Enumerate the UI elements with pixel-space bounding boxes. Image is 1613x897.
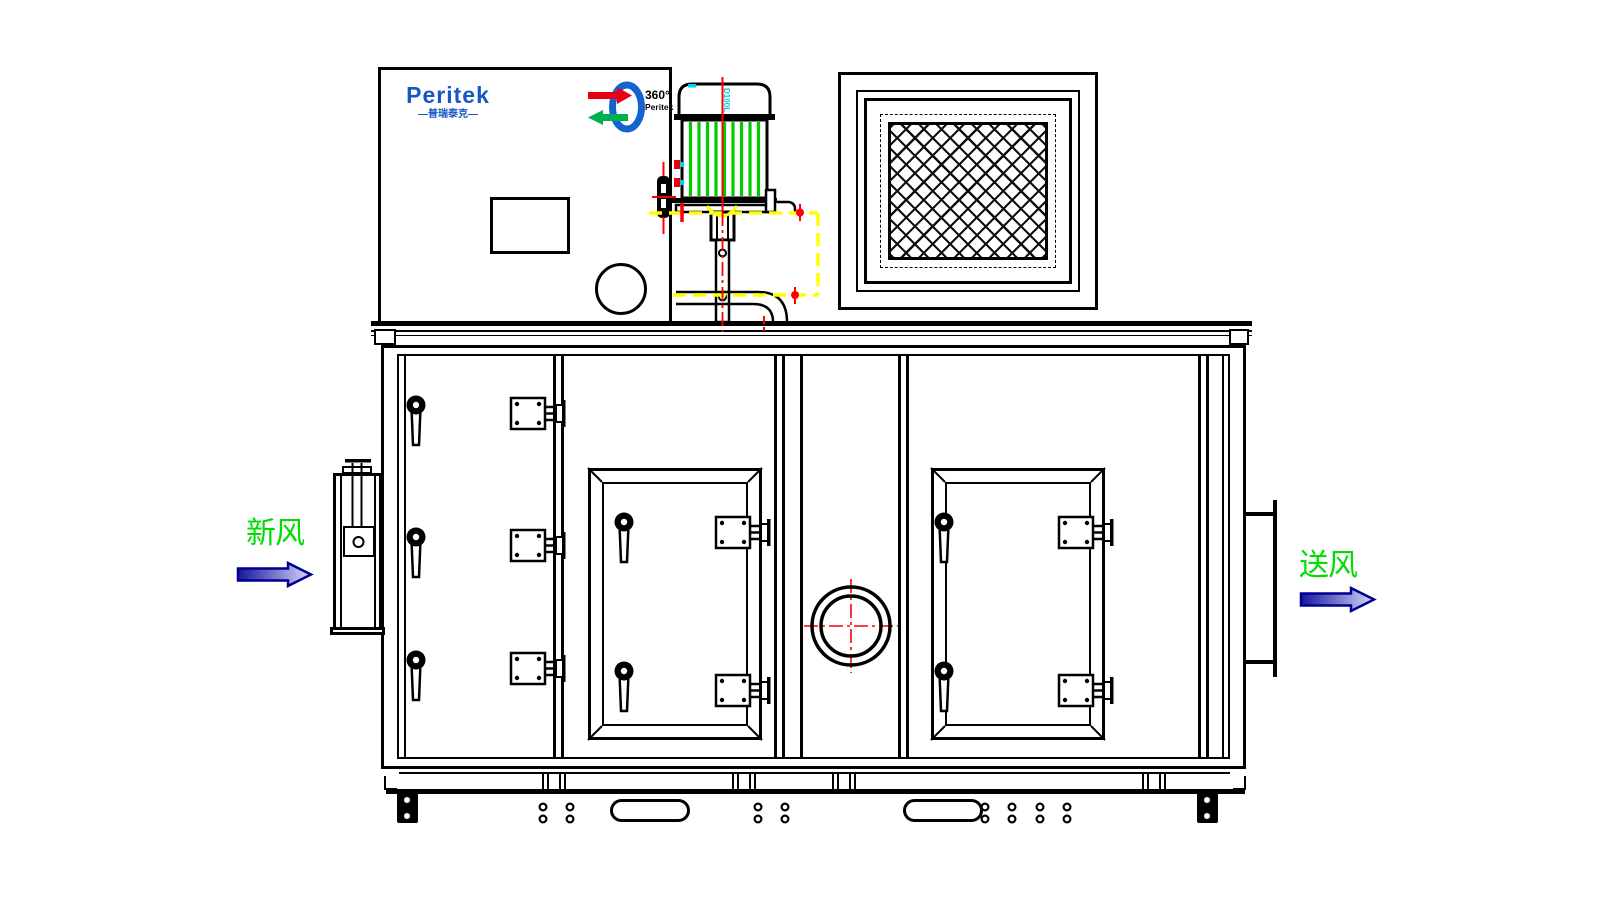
base-bracket-right xyxy=(1197,793,1218,823)
brand-logo-subtitle: —普瑞泰克— xyxy=(398,110,498,120)
outlet-flange-bottom xyxy=(1246,660,1277,664)
rim-line-1 xyxy=(371,330,1252,332)
motor-assembly xyxy=(671,84,795,322)
cabinet-inner xyxy=(397,354,1230,759)
base-channel-top xyxy=(386,789,1245,794)
motor-frame-size-label: D100L xyxy=(722,88,731,112)
brand-logo-text: Peritek xyxy=(398,84,498,107)
base-bracket-holes xyxy=(404,797,1210,819)
wall-line-right xyxy=(1222,356,1224,757)
base-left-notch xyxy=(384,776,397,790)
divider-d2 xyxy=(906,356,909,757)
inlet-duct-cap xyxy=(342,466,372,474)
forklift-slot-right xyxy=(903,799,983,822)
base-bolt-holes xyxy=(1037,804,1071,823)
base-bolt-holes xyxy=(540,804,574,823)
fresh-air-label: 新风 xyxy=(246,508,304,552)
divider-b2 xyxy=(782,356,785,757)
inlet-duct-line-l xyxy=(340,476,342,630)
inlet-duct-bottom xyxy=(330,627,385,635)
divider-b1 xyxy=(774,356,777,757)
wall-line-left xyxy=(404,356,406,757)
supply-air-label: 送风 xyxy=(1299,540,1357,584)
base-bolt-holes xyxy=(982,804,1016,823)
cyan-tick xyxy=(688,84,696,88)
forklift-slot-left xyxy=(610,799,690,822)
base-strip-ticks xyxy=(543,774,1165,789)
cad-drawing-canvas: Peritek —普瑞泰克— 新风 送 xyxy=(0,0,1613,897)
fresh-air-arrow xyxy=(238,563,311,586)
right-door-panel xyxy=(945,482,1091,726)
divider-e2 xyxy=(1206,356,1209,757)
divider-d1 xyxy=(898,356,901,757)
base-bracket-left xyxy=(397,793,418,823)
filter-mesh-grille xyxy=(888,122,1048,260)
roof-line xyxy=(371,321,1252,326)
motor-pedestal xyxy=(676,292,787,322)
motor-fins xyxy=(691,122,759,196)
supply-air-arrow xyxy=(1301,588,1374,611)
divider-e1 xyxy=(1198,356,1201,757)
brand-logo: Peritek —普瑞泰克— xyxy=(398,84,498,120)
middle-door-panel xyxy=(602,482,748,726)
rim-left-tab xyxy=(374,329,396,345)
base-strip-line xyxy=(399,772,1230,774)
divider-c xyxy=(800,356,803,757)
divider-a1 xyxy=(553,356,556,757)
rim-right-tab xyxy=(1229,329,1249,345)
damper-actuator xyxy=(343,526,375,557)
divider-a2 xyxy=(561,356,564,757)
yellow-datum-lines xyxy=(649,206,818,295)
base-bolt-holes xyxy=(755,804,789,823)
rim-line-2 xyxy=(371,335,1252,336)
round-knob xyxy=(595,263,647,315)
control-display-panel xyxy=(490,197,570,254)
base-right-notch xyxy=(1233,776,1246,790)
outlet-flange-side xyxy=(1273,500,1277,677)
